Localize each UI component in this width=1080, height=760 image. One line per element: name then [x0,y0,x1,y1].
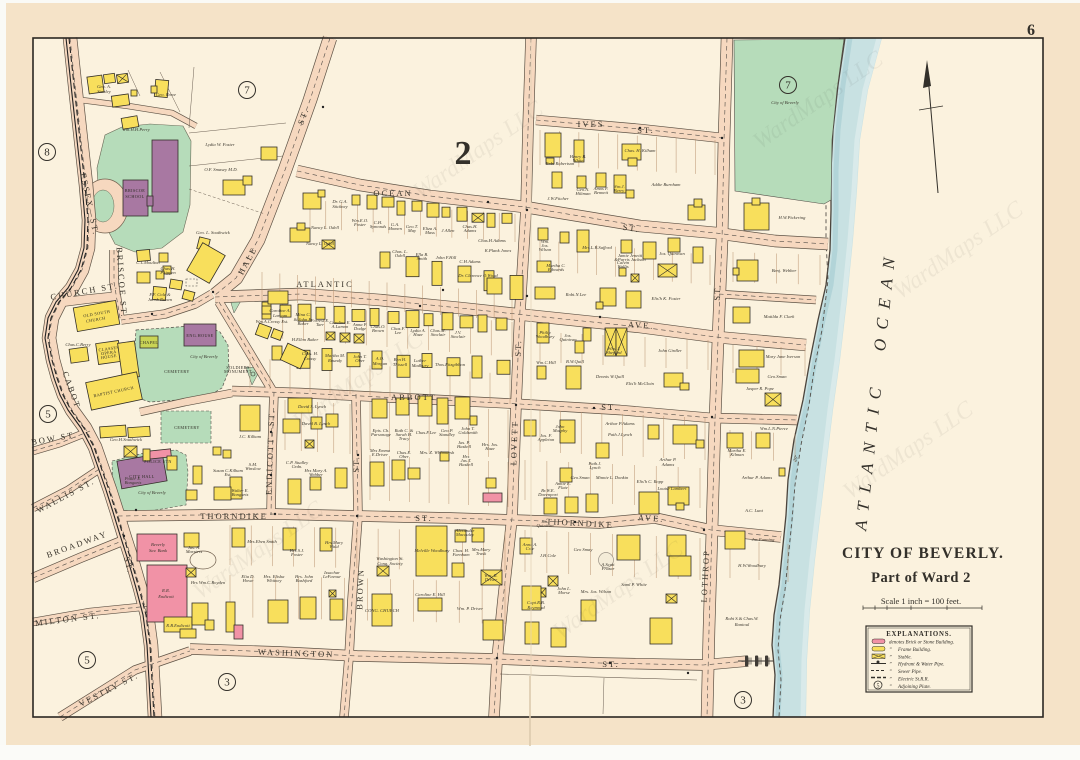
svg-text:Sinclair: Sinclair [451,334,466,339]
svg-text:6: 6 [1027,22,1035,39]
svg-text:Flate: Flate [557,485,568,490]
svg-text:Jas.Fanning: Jas.Fanning [752,537,776,542]
svg-text:K.Plank Jones: K.Plank Jones [484,248,512,253]
svg-text:Cole: Cole [526,546,535,551]
svg-text:Robt.N.Lee: Robt.N.Lee [565,292,587,297]
svg-text:IVES: IVES [578,119,605,129]
svg-text:THORNDIKE: THORNDIKE [200,511,268,521]
svg-text:Momen: Momen [387,226,402,231]
svg-text:R.B.Endicott: R.B.Endicott [165,623,190,628]
svg-text:John F.Hill: John F.Hill [436,255,457,260]
svg-text:Path.J.Lynch: Path.J.Lynch [607,432,633,437]
svg-text:Jos. Quinivan: Jos. Quinivan [659,251,685,256]
svg-text:Geo.Sman: Geo.Sman [767,374,787,379]
svg-text:Dodge: Dodge [353,326,366,331]
svg-text:Smith: Smith [417,256,428,261]
svg-text:Phippen: Phippen [159,270,176,275]
svg-text:Parsonage: Parsonage [370,432,391,437]
svg-text:Stickney: Stickney [332,204,348,209]
svg-text:Appleton: Appleton [537,437,555,442]
svg-text:Nancy L. Odell: Nancy L. Odell [310,225,340,230]
svg-text:ST.: ST. [602,659,619,669]
svg-text:J.H.Cole: J.H.Cole [540,553,556,558]
svg-text:Wald: Wald [329,544,339,549]
svg-text:Geo. L. Southwick: Geo. L. Southwick [196,230,231,235]
svg-text:7: 7 [785,80,791,92]
svg-text:Endicott: Endicott [157,594,174,599]
svg-text:Woodbury: Woodbury [536,334,556,339]
svg-text:Hiltman: Hiltman [574,191,591,196]
svg-text:Sinclair: Sinclair [431,332,446,337]
svg-text:A.C. Lunt: A.C. Lunt [744,508,763,513]
svg-text:City of Beverly: City of Beverly [190,354,219,359]
svg-text:” Electric St.R.R.: ” Electric St.R.R. [889,678,929,683]
svg-text:5: 5 [877,683,880,689]
svg-text:Bongarts: Bongarts [232,492,249,497]
svg-text:Stanley: Stanley [97,89,111,94]
svg-text:Est.: Est. [223,472,231,477]
svg-text:Geo.H.Southwick: Geo.H.Southwick [110,437,143,442]
svg-text:Caroline E. Hill: Caroline E. Hill [415,592,445,597]
svg-text:CEMETERY: CEMETERY [174,425,200,430]
svg-text:Wilson: Wilson [539,247,552,252]
svg-text:Farnham: Farnham [451,552,470,557]
svg-text:May: May [407,228,417,233]
svg-text:Wm.H.H.Perry: Wm.H.H.Perry [122,127,151,132]
svg-text:MONUMENT: MONUMENT [224,369,252,374]
svg-text:” Frame Building.: ” Frame Building. [889,648,931,653]
svg-text:Dr. Clarence O.Wood: Dr. Clarence O.Wood [457,273,498,278]
svg-text:Lydia W. Foster: Lydia W. Foster [204,142,234,147]
svg-text:Raymond: Raymond [526,605,545,610]
svg-text:” Sewer Pipe.: ” Sewer Pipe. [889,670,922,675]
svg-text:ST.: ST. [415,513,432,523]
svg-text:Quinivan: Quinivan [536,523,554,528]
svg-text:AVE.: AVE. [628,319,655,331]
svg-text:White: White [573,158,584,163]
svg-text:ST.: ST. [513,339,524,357]
svg-text:Sav. Bank: Sav. Bank [149,548,168,553]
svg-text:Elis'h K. Foster: Elis'h K. Foster [651,296,681,301]
svg-text:7: 7 [244,85,250,97]
svg-text:Tracy: Tracy [399,436,410,441]
svg-text:Robt Robertson: Robt Robertson [545,161,575,166]
svg-text:A.Lamon: A.Lamon [331,324,349,329]
svg-text:Wm. P. Driver: Wm. P. Driver [457,606,483,611]
svg-text:Macauley: Macauley [455,532,475,537]
svg-text:ST.: ST. [712,283,723,301]
svg-text:3: 3 [224,677,230,689]
svg-text:John Girdler: John Girdler [658,348,682,353]
svg-text:EXPLANATIONS.: EXPLANATIONS. [886,631,952,638]
svg-text:Edwards: Edwards [547,267,564,272]
svg-text:H.Ellon Baker: H.Ellon Baker [291,337,319,342]
svg-text:ST.: ST. [637,125,654,135]
svg-text:8: 8 [44,147,50,159]
svg-text:O.F. Smasey M.D.: O.F. Smasey M.D. [204,167,237,172]
svg-text:Elis'h C. Ropp: Elis'h C. Ropp [636,479,664,484]
svg-text:Foster: Foster [353,222,366,227]
svg-text:LeFavour: LeFavour [322,574,341,579]
svg-text:J.C. Kilham: J.C. Kilham [239,434,262,439]
svg-text:Chas.H.Adams: Chas.H.Adams [478,238,506,243]
svg-text:Driver: Driver [484,577,497,582]
svg-text:CHAPEL: CHAPEL [140,340,159,345]
svg-text:Benj. Webber: Benj. Webber [772,268,797,273]
svg-text:Arthur P.Adams: Arthur P.Adams [604,421,634,426]
svg-text:Robt S.& Chas.W.: Robt S.& Chas.W. [724,616,759,621]
svg-text:” Stable.: ” Stable. [889,655,912,660]
svg-text:denotes Brick or Stone Buildin: denotes Brick or Stone Building. [889,641,954,646]
svg-text:CITY OF BEVERLY.: CITY OF BEVERLY. [842,545,1004,562]
svg-text:Bongarts: Bongarts [125,480,142,485]
svg-text:Wm.L.N.Pierce: Wm.L.N.Pierce [760,426,788,431]
svg-text:Odell: Odell [395,253,406,258]
svg-text:Roundy: Roundy [327,358,343,363]
svg-text:5: 5 [84,655,90,667]
svg-text:J.W.Fitcher: J.W.Fitcher [547,196,568,201]
svg-text:Marsters: Marsters [185,549,203,554]
svg-text:Part of Ward 2: Part of Ward 2 [871,570,971,586]
svg-text:Scale 1 inch = 100 feet.: Scale 1 inch = 100 feet. [881,596,961,606]
svg-text:SCHOOL: SCHOOL [125,194,144,199]
svg-text:Grdn.: Grdn. [292,464,303,469]
svg-text:Symonds: Symonds [370,224,387,229]
svg-text:5: 5 [45,409,51,421]
svg-text:Tarr: Tarr [316,322,324,327]
svg-text:LOVETT: LOVETT [508,420,520,465]
svg-text:Bennett: Bennett [594,190,609,195]
svg-text:Wallis: Wallis [617,264,629,269]
svg-text:Murphy: Murphy [552,428,569,433]
svg-text:Quinivan: Quinivan [559,337,577,342]
svg-text:Beverly: Beverly [151,542,166,547]
svg-text:C.L.Moulton: C.L.Moulton [136,260,160,265]
svg-text:BRISCOE: BRISCOE [125,188,146,193]
svg-text:Brown: Brown [372,328,385,333]
svg-text:Wm.A.Cressy Est.: Wm.A.Cressy Est. [256,319,289,324]
svg-text:Cressy: Cressy [304,356,317,361]
svg-text:J.Allen: J.Allen [442,228,456,233]
svg-text:Kilman: Kilman [729,452,744,457]
svg-text:CITY HALL: CITY HALL [129,474,154,479]
svg-text:CEMETERY: CEMETERY [164,369,190,374]
svg-text:Elis'h McGloin: Elis'h McGloin [625,381,655,386]
svg-text:OCEAN: OCEAN [373,188,412,198]
svg-text:Baker: Baker [298,321,309,326]
svg-text:AVE.: AVE. [638,512,665,524]
svg-text:Chas.F.Lee: Chas.F.Lee [416,430,437,435]
svg-text:Adams: Adams [463,228,477,233]
svg-text:Chas.C.Berry: Chas.C.Berry [65,342,91,347]
svg-text:BROWN: BROWN [354,568,365,610]
svg-text:Cong. Society: Cong. Society [377,561,403,566]
svg-text:C.H.Adams: C.H.Adams [459,259,480,264]
svg-text:” Adjoining Plate.: ” Adjoining Plate. [889,685,931,690]
svg-text:Whitney: Whitney [266,578,282,583]
svg-text:Wm.C.Hill: Wm.C.Hill [536,360,556,365]
svg-text:Berry: Berry [614,188,625,193]
svg-text:Geo Smay: Geo Smay [574,547,594,552]
svg-text:Lynch: Lynch [588,465,601,470]
svg-text:Haskell: Haskell [458,462,474,467]
svg-text:Mass: Mass [424,230,435,235]
svg-text:Adams: Adams [661,462,675,467]
svg-text:Jasper R. Pope: Jasper R. Pope [746,386,774,391]
svg-text:Mary Jane Iverson: Mary Jane Iverson [765,354,801,359]
svg-text:Geo.Sman: Geo.Sman [570,475,590,480]
svg-text:Addie Burnham: Addie Burnham [651,182,682,187]
svg-text:3: 3 [740,695,746,707]
svg-text:R.R.: R.R. [161,588,170,593]
svg-text:Morse: Morse [557,590,570,595]
svg-text:Chas. H. Kilham: Chas. H. Kilham [625,148,657,153]
svg-text:Larcom: Larcom [272,313,288,318]
svg-text:Minnie L. Donkin: Minnie L. Donkin [595,475,629,480]
svg-text:Howe: Howe [242,578,254,583]
svg-text:POLICE STN: POLICE STN [144,459,172,464]
svg-text:Geo. Rowe: Geo. Rowe [156,92,176,97]
svg-text:ATLANTIC: ATLANTIC [296,279,354,289]
svg-text:Shepard: Shepard [606,350,622,355]
svg-text:Standley: Standley [439,432,456,437]
svg-text:Louise Lambert: Louise Lambert [657,486,688,491]
svg-text:B.W.Quill: B.W.Quill [566,359,585,364]
svg-text:Davenport: Davenport [537,492,558,497]
svg-text:H.W.Woodbury: H.W.Woodbury [737,563,767,568]
svg-text:Mrs. Z. Whitmarsh: Mrs. Z. Whitmarsh [419,450,455,455]
svg-text:Haskell: Haskell [456,444,472,449]
svg-text:Thos.Fitzgibbon: Thos.Fitzgibbon [435,362,466,367]
svg-text:ENG.HOUSE: ENG.HOUSE [186,333,213,338]
svg-text:Bashford: Bashford [296,578,313,583]
svg-text:CONG. CHURCH: CONG. CHURCH [365,608,400,613]
svg-text:Arthur P. Adams: Arthur P. Adams [741,475,773,480]
svg-text:ABBOTT: ABBOTT [391,392,437,402]
svg-text:E.Driver: E.Driver [371,452,388,457]
svg-text:Ober: Ober [399,454,409,459]
svg-text:Haze: Haze [484,446,494,451]
svg-text:Matilda F. Clark: Matilda F. Clark [763,314,796,319]
svg-text:City of Beverly: City of Beverly [138,490,167,495]
svg-text:Nancy L. Odell: Nancy L. Odell [305,241,335,246]
svg-text:Winslow: Winslow [245,466,262,471]
svg-text:” Hydrant & Water Pipe.: ” Hydrant & Water Pipe. [889,663,945,668]
svg-text:Melville Woodbury: Melville Woodbury [414,548,451,553]
svg-text:Foster: Foster [290,552,303,557]
svg-text:Trask: Trask [476,551,487,556]
svg-text:Frazar: Frazar [601,566,615,571]
svg-text:Jacob Brown: Jacob Brown [148,297,173,302]
svg-text:H.W.Pickering: H.W.Pickering [778,215,807,220]
svg-text:Dennis W.Quill: Dennis W.Quill [595,374,625,379]
svg-text:Mrs.L.B.Safford: Mrs.L.B.Safford [581,245,612,250]
svg-text:Madbury: Madbury [411,363,430,368]
svg-text:Rantoul: Rantoul [734,622,750,627]
svg-text:Goldsmith: Goldsmith [458,430,478,435]
svg-text:ST.: ST. [351,455,362,473]
svg-text:Webber: Webber [309,472,323,477]
svg-text:ST.: ST. [601,402,618,412]
